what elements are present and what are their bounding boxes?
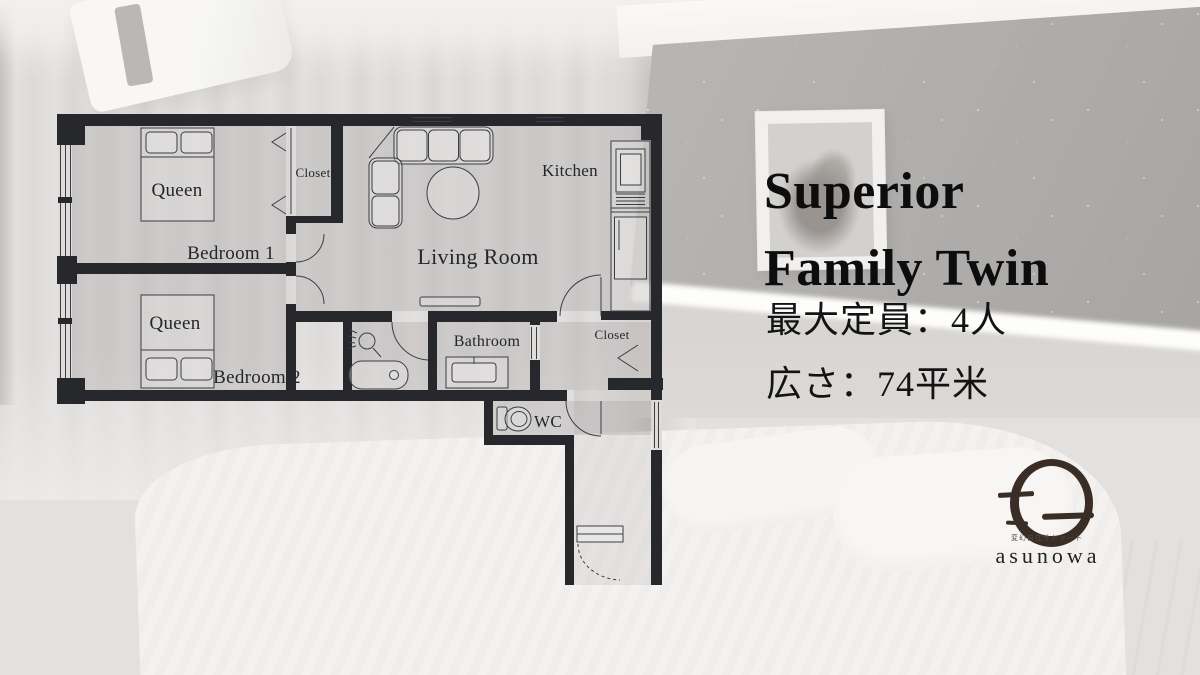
label-kitchen: Kitchen xyxy=(542,161,598,180)
capacity-text: 最大定員：4人 xyxy=(766,296,1007,344)
room-plan-banner: Queen Bedroom 1 Queen Bedroom 2 Closet K… xyxy=(0,0,1200,675)
label-bedroom-2: Bedroom 2 xyxy=(213,367,301,388)
area-text: 広さ：74平米 xyxy=(766,360,989,408)
round-table xyxy=(427,167,479,219)
logo-wordmark: asunowa xyxy=(992,543,1104,569)
enso-brush-streak xyxy=(1006,521,1028,526)
label-bedroom-1: Bedroom 1 xyxy=(187,243,275,264)
floor-plan: Queen Bedroom 1 Queen Bedroom 2 Closet K… xyxy=(0,0,1200,675)
room-type-title: Superior Family Twin xyxy=(764,153,1194,307)
bathtub xyxy=(349,361,408,389)
toilet xyxy=(497,407,531,431)
room-title-line1: Superior xyxy=(764,153,1194,230)
queen-bed-2 xyxy=(141,295,214,388)
logo-tagline: 変幻自在サトァート xyxy=(1002,533,1092,543)
label-living-room: Living Room xyxy=(417,244,538,269)
label-closet-top: Closet xyxy=(295,165,330,180)
tv-board xyxy=(420,297,480,306)
queen-bed-1 xyxy=(141,128,214,221)
bathroom-sink xyxy=(446,357,508,388)
label-wc: WC xyxy=(534,412,562,431)
kitchen-unit xyxy=(611,141,650,311)
label-closet-entry: Closet xyxy=(594,327,629,342)
label-bathroom: Bathroom xyxy=(454,333,521,350)
entrance-door xyxy=(577,526,623,542)
label-queen-2: Queen xyxy=(149,313,200,334)
label-queen-1: Queen xyxy=(151,180,202,201)
